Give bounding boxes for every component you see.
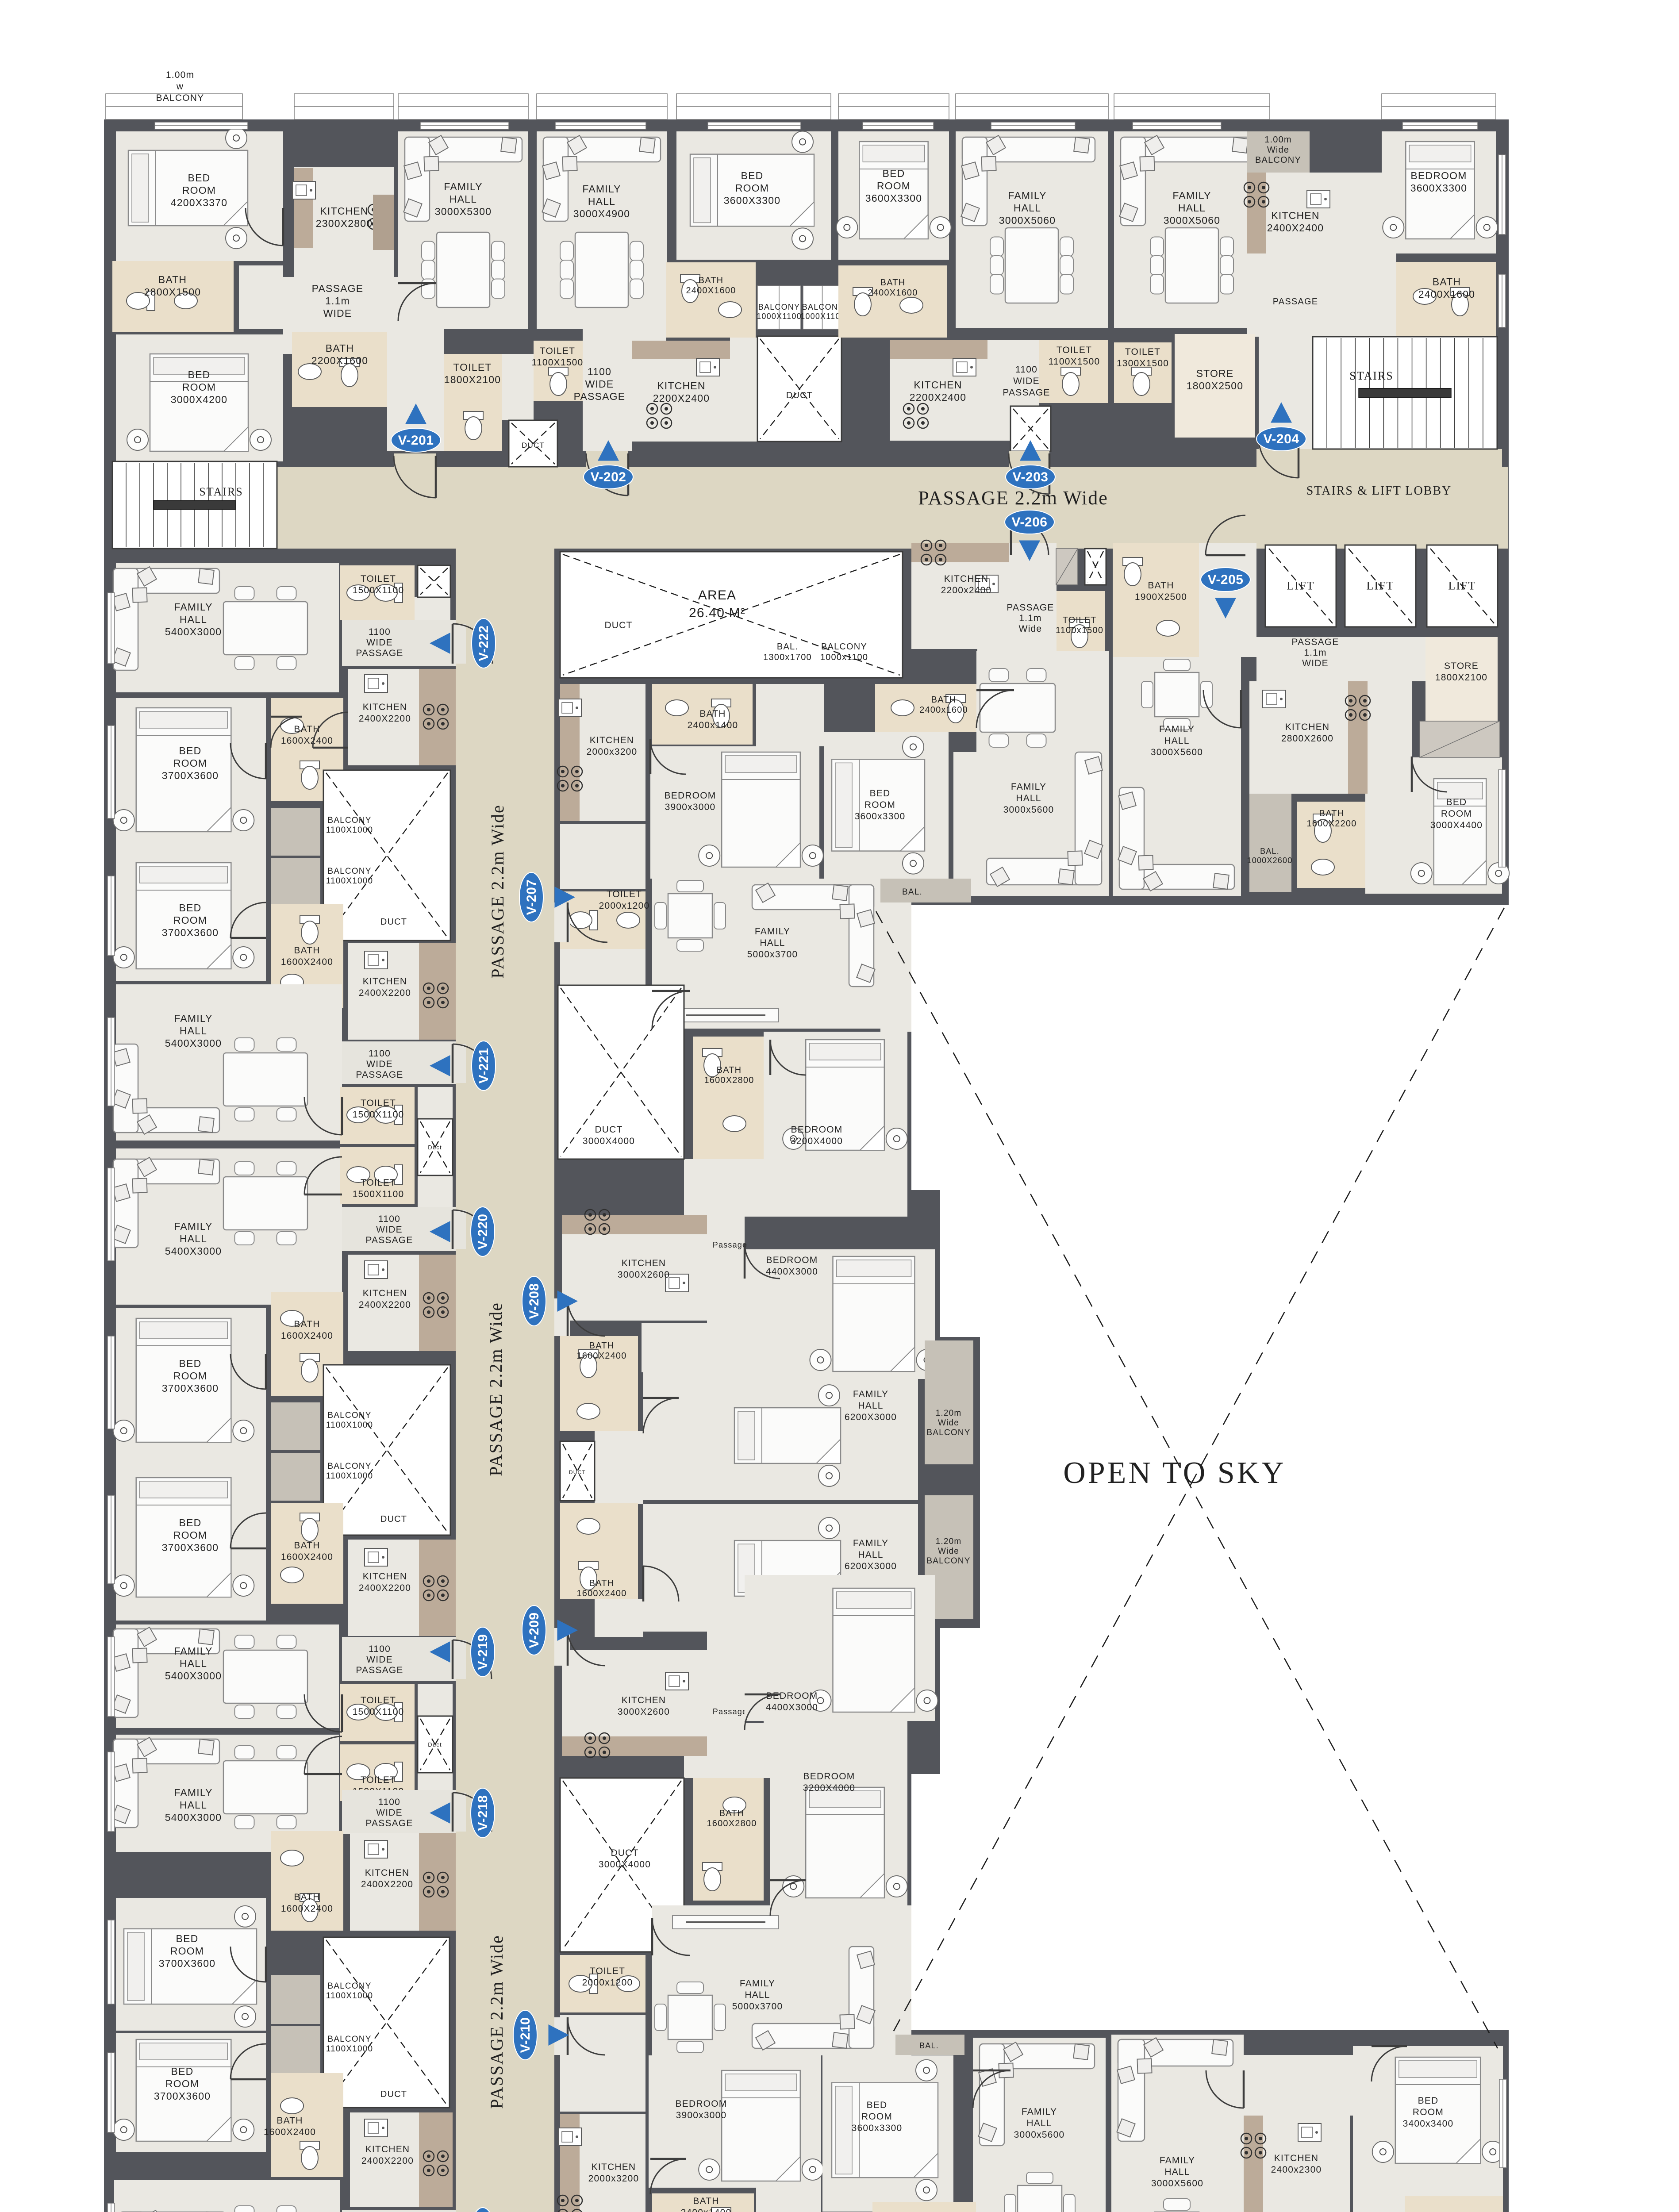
svg-text:1100X1500: 1100X1500 — [532, 357, 584, 368]
svg-text:DUCT: DUCT — [522, 441, 545, 449]
svg-text:1600X2400: 1600X2400 — [576, 1351, 626, 1361]
svg-text:5400X3000: 5400X3000 — [165, 1037, 222, 1049]
svg-text:BED: BED — [883, 168, 905, 179]
svg-text:BAL.: BAL. — [902, 887, 922, 897]
svg-text:BEDROOM: BEDROOM — [766, 1255, 818, 1265]
svg-text:ROOM: ROOM — [1413, 2107, 1444, 2117]
svg-text:3600X3300: 3600X3300 — [1410, 182, 1467, 194]
svg-text:PASSAGE: PASSAGE — [312, 283, 364, 294]
svg-text:PASSAGE: PASSAGE — [356, 1070, 403, 1080]
svg-text:1600X2400: 1600X2400 — [281, 1904, 333, 1914]
svg-text:STORE: STORE — [1444, 661, 1479, 671]
svg-text:2400X2200: 2400X2200 — [359, 1583, 411, 1593]
svg-text:3000x5600: 3000x5600 — [1014, 2130, 1065, 2140]
svg-text:1600X2400: 1600X2400 — [264, 2127, 316, 2137]
svg-text:FAMILY: FAMILY — [444, 181, 482, 192]
svg-text:KITCHEN: KITCHEN — [590, 735, 634, 745]
svg-text:5400X3000: 5400X3000 — [165, 1812, 222, 1823]
svg-text:ROOM: ROOM — [861, 2112, 892, 2122]
svg-text:FAMILY: FAMILY — [174, 1013, 212, 1024]
svg-text:BALCONY: BALCONY — [926, 1428, 970, 1437]
svg-text:KITCHEN: KITCHEN — [1274, 2153, 1319, 2163]
svg-text:Duct: Duct — [428, 1144, 442, 1151]
svg-text:BEDROOM: BEDROOM — [791, 1125, 843, 1135]
svg-text:1100X1000: 1100X1000 — [326, 826, 373, 835]
svg-text:BEDROOM: BEDROOM — [665, 791, 716, 801]
svg-text:1600X2400: 1600X2400 — [281, 1552, 333, 1562]
svg-text:1500X1100: 1500X1100 — [353, 1189, 404, 1199]
svg-text:3000X5600: 3000X5600 — [1151, 747, 1203, 757]
svg-text:V-209: V-209 — [527, 1613, 542, 1648]
svg-text:BEDROOM: BEDROOM — [766, 1691, 818, 1701]
svg-text:FAMILY: FAMILY — [1160, 2155, 1195, 2166]
svg-text:3000X5060: 3000X5060 — [999, 215, 1056, 226]
svg-text:2400x1400: 2400x1400 — [681, 2208, 732, 2212]
svg-text:2400X2200: 2400X2200 — [359, 714, 411, 724]
svg-text:3600X3300: 3600X3300 — [865, 192, 922, 204]
svg-text:BEDROOM: BEDROOM — [1410, 170, 1467, 181]
svg-text:FAMILY: FAMILY — [1008, 190, 1046, 201]
svg-text:FAMILY: FAMILY — [1022, 2107, 1057, 2117]
svg-text:BED: BED — [179, 1358, 202, 1369]
svg-text:STAIRS & LIFT LOBBY: STAIRS & LIFT LOBBY — [1306, 484, 1452, 498]
svg-text:KITCHEN: KITCHEN — [365, 2144, 410, 2154]
svg-text:3600x3300: 3600x3300 — [852, 2123, 903, 2133]
svg-text:Wide: Wide — [938, 1418, 959, 1428]
svg-text:Duct: Duct — [428, 1741, 442, 1748]
svg-text:BED: BED — [179, 902, 202, 914]
svg-text:DUCT: DUCT — [604, 620, 632, 630]
svg-text:V-219: V-219 — [476, 1634, 490, 1670]
svg-text:TOILET: TOILET — [361, 1695, 396, 1705]
svg-text:BALCONY: BALCONY — [156, 93, 204, 103]
svg-text:1800X2500: 1800X2500 — [1187, 380, 1243, 392]
svg-text:HALL: HALL — [745, 1990, 770, 2000]
svg-text:5000x3700: 5000x3700 — [747, 949, 798, 960]
svg-text:FAMILY: FAMILY — [582, 183, 621, 195]
svg-text:V-207: V-207 — [524, 879, 539, 915]
svg-text:2000x3200: 2000x3200 — [587, 747, 638, 757]
svg-text:Wide: Wide — [1019, 624, 1042, 634]
svg-text:KITCHEN: KITCHEN — [1271, 210, 1319, 221]
svg-text:3900x3000: 3900x3000 — [676, 2110, 727, 2120]
svg-text:6200X3000: 6200X3000 — [845, 1561, 897, 1571]
svg-text:1.1m: 1.1m — [1019, 613, 1042, 623]
svg-text:V-218: V-218 — [476, 1795, 490, 1831]
svg-text:BATH: BATH — [717, 1065, 742, 1075]
svg-text:2000x1200: 2000x1200 — [599, 901, 650, 911]
svg-text:STAIRS: STAIRS — [1349, 369, 1394, 382]
svg-text:ROOM: ROOM — [165, 2078, 199, 2089]
svg-text:HALL: HALL — [1164, 2167, 1190, 2177]
svg-text:HALL: HALL — [180, 614, 207, 625]
svg-text:FAMILY: FAMILY — [1172, 190, 1211, 201]
svg-text:BATH: BATH — [277, 2116, 303, 2126]
svg-text:3000x5600: 3000x5600 — [1003, 805, 1054, 815]
svg-text:2000x3200: 2000x3200 — [588, 2174, 639, 2184]
svg-text:BATH: BATH — [326, 342, 354, 354]
svg-text:KITCHEN: KITCHEN — [320, 205, 368, 217]
svg-text:HALL: HALL — [858, 1550, 883, 1560]
svg-text:V-221: V-221 — [476, 1048, 491, 1084]
svg-text:3000X4000: 3000X4000 — [583, 1136, 635, 1146]
svg-text:1100: 1100 — [378, 1797, 400, 1807]
svg-text:BALCONY: BALCONY — [327, 867, 371, 876]
svg-text:LIFT: LIFT — [1448, 580, 1476, 592]
svg-text:HALL: HALL — [858, 1401, 883, 1411]
svg-text:FAMILY: FAMILY — [755, 926, 790, 937]
svg-text:V-202: V-202 — [591, 470, 626, 484]
svg-text:1600X2400: 1600X2400 — [576, 1589, 626, 1598]
svg-text:AREA: AREA — [698, 588, 737, 603]
svg-text:PASSAGE 2.2m Wide: PASSAGE 2.2m Wide — [486, 1302, 506, 1476]
svg-text:3700X3600: 3700X3600 — [154, 2090, 211, 2102]
svg-text:BED: BED — [171, 2066, 194, 2077]
svg-text:1500X1100: 1500X1100 — [353, 1110, 404, 1120]
svg-text:ROOM: ROOM — [173, 757, 207, 769]
svg-text:BALCONY: BALCONY — [802, 303, 844, 311]
svg-text:1100X1500: 1100X1500 — [1049, 357, 1100, 367]
svg-text:3600x3300: 3600x3300 — [855, 811, 906, 822]
svg-text:FAMILY: FAMILY — [174, 601, 212, 613]
svg-text:BAL.: BAL. — [1260, 847, 1279, 856]
svg-text:3000X4200: 3000X4200 — [171, 394, 227, 405]
svg-text:PASSAGE: PASSAGE — [365, 1818, 413, 1828]
svg-text:1.00m: 1.00m — [1264, 135, 1292, 145]
svg-text:LIFT: LIFT — [1367, 580, 1395, 592]
svg-text:PASSAGE: PASSAGE — [1003, 388, 1050, 398]
svg-text:HALL: HALL — [588, 196, 615, 207]
svg-text:WIDE: WIDE — [366, 1059, 393, 1069]
svg-text:TOILET: TOILET — [1057, 345, 1092, 355]
svg-text:DUCT: DUCT — [595, 1125, 622, 1135]
svg-text:ROOM: ROOM — [864, 800, 895, 810]
svg-text:2300X2800: 2300X2800 — [316, 218, 373, 229]
svg-text:FAMILY: FAMILY — [740, 1978, 775, 1989]
svg-text:KITCHEN: KITCHEN — [944, 574, 989, 584]
svg-text:1000X1100: 1000X1100 — [757, 312, 802, 321]
svg-text:HALL: HALL — [1016, 793, 1041, 803]
svg-text:TOILET: TOILET — [361, 1775, 396, 1785]
svg-text:BATH: BATH — [1319, 809, 1345, 818]
svg-text:BATH: BATH — [1148, 580, 1174, 591]
svg-text:ROOM: ROOM — [173, 1370, 207, 1382]
svg-text:BATH: BATH — [294, 1319, 320, 1329]
svg-text:BALCONY: BALCONY — [327, 1982, 371, 1991]
svg-text:3000X5060: 3000X5060 — [1164, 215, 1220, 226]
svg-text:HALL: HALL — [180, 1799, 207, 1811]
svg-text:PASSAGE 2.2m Wide: PASSAGE 2.2m Wide — [918, 487, 1108, 509]
svg-text:BATH: BATH — [699, 276, 724, 285]
svg-text:BATH: BATH — [589, 1578, 615, 1588]
svg-text:BATH: BATH — [589, 1341, 615, 1351]
svg-text:PASSAGE 2.2m Wide: PASSAGE 2.2m Wide — [488, 804, 507, 979]
svg-text:2400X2200: 2400X2200 — [361, 2156, 414, 2166]
svg-text:2400X1600: 2400X1600 — [686, 286, 736, 296]
svg-text:3900x3000: 3900x3000 — [665, 802, 716, 812]
svg-text:HALL: HALL — [1026, 2118, 1052, 2128]
svg-text:BATH: BATH — [294, 1540, 320, 1551]
svg-text:1500X1100: 1500X1100 — [353, 1707, 404, 1717]
svg-text:3000X4000: 3000X4000 — [599, 1859, 651, 1870]
svg-text:LIFT: LIFT — [1287, 580, 1315, 592]
svg-text:ROOM: ROOM — [182, 381, 216, 393]
svg-text:TOILET: TOILET — [453, 361, 492, 373]
svg-text:PASSAGE: PASSAGE — [1007, 603, 1054, 613]
svg-text:BED: BED — [867, 2100, 888, 2110]
svg-text:BAL.: BAL. — [777, 642, 798, 652]
svg-text:BED: BED — [188, 369, 211, 380]
svg-text:1100: 1100 — [378, 1214, 400, 1224]
svg-text:1100: 1100 — [1015, 365, 1037, 375]
svg-text:1300x1700: 1300x1700 — [763, 653, 812, 662]
svg-text:PASSAGE: PASSAGE — [356, 1665, 403, 1675]
svg-text:TOILET: TOILET — [1063, 615, 1097, 625]
svg-text:BED: BED — [188, 172, 211, 184]
svg-text:BED: BED — [179, 1517, 202, 1528]
svg-text:1100X1000: 1100X1000 — [326, 1991, 373, 2001]
svg-text:BALCONY: BALCONY — [327, 1411, 371, 1420]
svg-text:HALL: HALL — [180, 1233, 207, 1244]
svg-text:ROOM: ROOM — [1441, 809, 1472, 819]
svg-text:w: w — [176, 81, 184, 92]
svg-text:PASSAGE: PASSAGE — [574, 391, 626, 402]
svg-text:BED: BED — [176, 1933, 199, 1944]
svg-text:ROOM: ROOM — [877, 180, 911, 192]
svg-text:2800X1500: 2800X1500 — [144, 286, 201, 298]
svg-text:3200X4000: 3200X4000 — [803, 1783, 855, 1793]
svg-text:6200X3000: 6200X3000 — [845, 1412, 897, 1422]
svg-text:BALCONY: BALCONY — [758, 303, 800, 311]
svg-text:4200X3370: 4200X3370 — [171, 197, 227, 208]
svg-text:BED: BED — [179, 745, 202, 757]
svg-text:BATH: BATH — [1433, 276, 1461, 288]
svg-text:2400x2300: 2400x2300 — [1271, 2165, 1322, 2175]
svg-text:TOILET: TOILET — [361, 1178, 396, 1188]
svg-text:ROOM: ROOM — [170, 1945, 204, 1957]
svg-text:WIDE: WIDE — [366, 1655, 393, 1665]
svg-text:26.40 M²: 26.40 M² — [689, 606, 745, 620]
svg-text:BALCONY: BALCONY — [821, 642, 867, 652]
svg-text:1300X1500: 1300X1500 — [1117, 358, 1169, 369]
svg-text:Passage: Passage — [713, 1240, 747, 1249]
svg-text:TOILET: TOILET — [540, 346, 575, 356]
svg-text:FAMILY: FAMILY — [1011, 782, 1046, 792]
svg-text:BED: BED — [741, 170, 764, 181]
svg-text:2400X2200: 2400X2200 — [359, 988, 411, 998]
svg-text:WIDE: WIDE — [323, 307, 352, 319]
svg-text:HALL: HALL — [1164, 736, 1189, 746]
svg-text:STAIRS: STAIRS — [199, 485, 243, 498]
svg-text:DUCT: DUCT — [786, 391, 813, 400]
svg-text:2400X2200: 2400X2200 — [359, 1300, 411, 1310]
svg-text:1000X2600: 1000X2600 — [1247, 856, 1293, 865]
svg-text:2400x1600: 2400x1600 — [919, 705, 968, 715]
svg-text:DUCT: DUCT — [611, 1848, 638, 1858]
svg-text:ROOM: ROOM — [173, 1529, 207, 1541]
svg-text:WIDE: WIDE — [585, 378, 614, 390]
svg-text:V-210: V-210 — [518, 2017, 533, 2053]
svg-text:PASSAGE 2.2m Wide: PASSAGE 2.2m Wide — [487, 1935, 507, 2109]
svg-text:2200X2400: 2200X2400 — [910, 392, 966, 403]
svg-text:BEDROOM: BEDROOM — [676, 2099, 727, 2109]
svg-text:KITCHEN: KITCHEN — [914, 379, 962, 391]
svg-text:ROOM: ROOM — [735, 182, 769, 194]
svg-text:FAMILY: FAMILY — [1159, 724, 1195, 734]
svg-text:1600X2400: 1600X2400 — [281, 736, 333, 746]
svg-text:FAMILY: FAMILY — [853, 1538, 888, 1548]
svg-text:BATH: BATH — [158, 274, 187, 285]
svg-text:BATH: BATH — [294, 1892, 320, 1902]
svg-text:BALCONY: BALCONY — [1255, 155, 1301, 165]
svg-text:3400x3400: 3400x3400 — [1403, 2119, 1454, 2129]
svg-text:BED: BED — [1446, 797, 1467, 807]
svg-text:1100: 1100 — [588, 366, 611, 377]
svg-text:PASSAGE: PASSAGE — [1273, 297, 1318, 307]
svg-text:ROOM: ROOM — [182, 184, 216, 196]
svg-text:BATH: BATH — [931, 695, 957, 705]
svg-text:1100: 1100 — [369, 1048, 391, 1059]
svg-text:1100: 1100 — [369, 627, 391, 637]
svg-text:1800X2100: 1800X2100 — [1435, 672, 1487, 683]
svg-text:BATH: BATH — [294, 945, 320, 956]
svg-text:5000x3700: 5000x3700 — [732, 2001, 783, 2012]
svg-text:DUCT: DUCT — [380, 917, 407, 927]
svg-text:BATH: BATH — [719, 1809, 745, 1818]
svg-text:1600X2800: 1600X2800 — [707, 1819, 757, 1828]
svg-text:Wide: Wide — [1267, 145, 1289, 155]
svg-text:4400X3000: 4400X3000 — [766, 1702, 818, 1713]
svg-text:1800X2100: 1800X2100 — [444, 374, 501, 385]
svg-text:3000X2600: 3000X2600 — [618, 1270, 670, 1280]
svg-text:5400X3000: 5400X3000 — [165, 1670, 222, 1682]
svg-text:V-201: V-201 — [398, 433, 434, 448]
svg-text:BED: BED — [870, 788, 891, 799]
svg-text:1.1m: 1.1m — [1304, 648, 1327, 658]
svg-text:5400X3000: 5400X3000 — [165, 1245, 222, 1257]
svg-text:1100x1500: 1100x1500 — [1056, 626, 1103, 635]
svg-text:V-208: V-208 — [527, 1283, 542, 1319]
svg-text:HALL: HALL — [1014, 202, 1041, 214]
svg-text:BATH: BATH — [693, 2196, 719, 2206]
svg-text:BATH: BATH — [699, 709, 726, 719]
svg-text:1.00m: 1.00m — [166, 70, 194, 80]
svg-text:2400X1600: 2400X1600 — [868, 288, 918, 298]
svg-text:2400X2200: 2400X2200 — [361, 1879, 413, 1889]
svg-text:2400X1600: 2400X1600 — [1418, 288, 1475, 300]
svg-text:BED: BED — [1418, 2096, 1439, 2106]
svg-text:3700X3600: 3700X3600 — [162, 770, 219, 781]
svg-text:3000X2600: 3000X2600 — [618, 1707, 670, 1717]
svg-text:1100X1000: 1100X1000 — [326, 876, 373, 886]
svg-text:KITCHEN: KITCHEN — [365, 1868, 410, 1878]
svg-text:HALL: HALL — [1178, 202, 1206, 214]
svg-text:KITCHEN: KITCHEN — [622, 1258, 666, 1268]
svg-text:PASSAGE: PASSAGE — [356, 648, 403, 658]
svg-text:DUCT: DUCT — [569, 1469, 586, 1475]
svg-text:1.20m: 1.20m — [936, 1537, 962, 1546]
svg-text:HALL: HALL — [760, 938, 785, 948]
svg-text:TOILET: TOILET — [361, 1098, 396, 1108]
svg-text:3000X4400: 3000X4400 — [1430, 820, 1483, 830]
svg-text:3700X3600: 3700X3600 — [162, 927, 219, 938]
svg-text:BEDROOM: BEDROOM — [803, 1771, 855, 1782]
svg-text:OPEN TO SKY: OPEN TO SKY — [1063, 1456, 1286, 1490]
svg-text:KITCHEN: KITCHEN — [363, 1288, 407, 1298]
svg-text:1000x1100: 1000x1100 — [820, 653, 868, 662]
svg-text:V-206: V-206 — [1012, 515, 1048, 530]
svg-text:1600X2400: 1600X2400 — [281, 957, 333, 967]
svg-text:KITCHEN: KITCHEN — [592, 2162, 636, 2172]
svg-text:1500X1100: 1500X1100 — [353, 585, 404, 595]
svg-text:DUCT: DUCT — [380, 1514, 407, 1524]
svg-text:DUCT: DUCT — [380, 2089, 407, 2099]
svg-text:BALCONY: BALCONY — [327, 1462, 371, 1471]
svg-text:Passage: Passage — [713, 1707, 747, 1716]
svg-text:2400X2400: 2400X2400 — [1267, 222, 1324, 234]
svg-text:2200x2400: 2200x2400 — [941, 585, 992, 595]
svg-text:HALL: HALL — [180, 1658, 207, 1669]
svg-text:1900X2500: 1900X2500 — [1135, 592, 1187, 602]
svg-text:3700X3600: 3700X3600 — [159, 1958, 215, 1969]
svg-text:1600X2800: 1600X2800 — [704, 1075, 754, 1085]
svg-text:ROOM: ROOM — [173, 914, 207, 926]
svg-text:WIDE: WIDE — [1302, 658, 1329, 668]
svg-text:1100X1000: 1100X1000 — [326, 1471, 373, 1481]
svg-text:1.20m: 1.20m — [936, 1409, 962, 1418]
svg-text:BALCONY: BALCONY — [327, 2035, 371, 2044]
svg-text:3000X5300: 3000X5300 — [435, 206, 492, 217]
svg-text:1100X1000: 1100X1000 — [326, 1421, 373, 1430]
svg-text:Wide: Wide — [938, 1547, 959, 1556]
svg-text:2400x1400: 2400x1400 — [688, 720, 738, 730]
svg-text:V-222: V-222 — [476, 626, 491, 661]
svg-text:1100X1000: 1100X1000 — [326, 2044, 373, 2054]
svg-text:2800X2600: 2800X2600 — [1281, 733, 1333, 744]
svg-text:HALL: HALL — [180, 1025, 207, 1037]
svg-text:KITCHEN: KITCHEN — [363, 976, 407, 987]
svg-text:KITCHEN: KITCHEN — [1285, 722, 1330, 732]
svg-text:4400X3000: 4400X3000 — [766, 1267, 818, 1277]
svg-text:PASSAGE: PASSAGE — [365, 1235, 413, 1245]
svg-text:V-204: V-204 — [1264, 432, 1299, 446]
svg-text:1.1m: 1.1m — [325, 295, 350, 307]
svg-text:KITCHEN: KITCHEN — [657, 380, 705, 392]
svg-text:BAL.: BAL. — [919, 2041, 939, 2050]
svg-text:V-203: V-203 — [1013, 470, 1049, 484]
svg-text:TOILET: TOILET — [607, 889, 642, 899]
svg-text:STORE: STORE — [1196, 368, 1234, 379]
svg-text:PASSAGE: PASSAGE — [1291, 637, 1339, 647]
svg-text:5400X3000: 5400X3000 — [165, 626, 222, 637]
svg-text:BALCONY: BALCONY — [327, 816, 371, 825]
svg-text:WIDE: WIDE — [376, 1808, 403, 1818]
svg-text:FAMILY: FAMILY — [174, 1645, 212, 1657]
svg-text:KITCHEN: KITCHEN — [363, 1571, 407, 1582]
svg-text:BATH: BATH — [880, 278, 906, 288]
svg-text:2200X2400: 2200X2400 — [653, 392, 710, 404]
svg-text:3000X4900: 3000X4900 — [573, 208, 630, 219]
svg-text:3000X5600: 3000X5600 — [1151, 2178, 1203, 2189]
svg-text:KITCHEN: KITCHEN — [363, 702, 407, 712]
svg-text:1600X2200: 1600X2200 — [1306, 819, 1356, 829]
svg-text:V-220: V-220 — [476, 1214, 490, 1250]
svg-text:WIDE: WIDE — [1013, 376, 1040, 386]
svg-text:2000x1200: 2000x1200 — [582, 1978, 633, 1988]
svg-text:1100: 1100 — [369, 1644, 391, 1654]
svg-text:HALL: HALL — [450, 193, 477, 205]
svg-text:3700X3600: 3700X3600 — [162, 1382, 219, 1394]
